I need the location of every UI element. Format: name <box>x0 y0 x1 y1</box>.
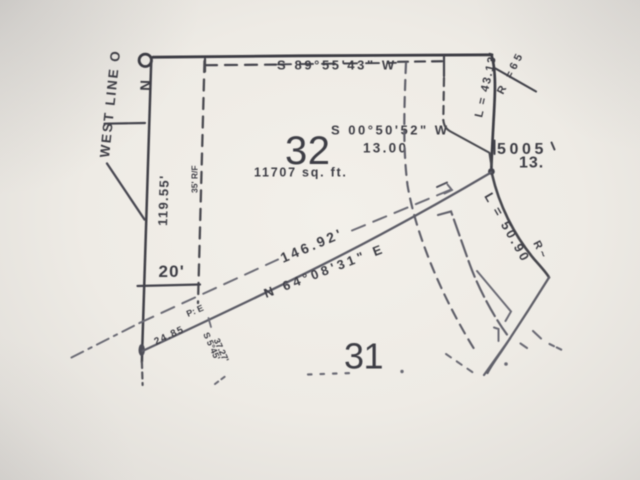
svg-text:119.55': 119.55' <box>155 174 172 226</box>
svg-text:24.85: 24.85 <box>153 324 187 348</box>
svg-text:R =65: R =65 <box>495 49 527 96</box>
svg-text:L = 50.90: L = 50.90 <box>481 190 533 265</box>
svg-text:35' R/F: 35' R/F <box>190 165 200 193</box>
svg-text:11707 sq. ft.: 11707 sq. ft. <box>254 166 348 180</box>
svg-text:13.00: 13.00 <box>363 141 408 156</box>
svg-text:13.: 13. <box>519 155 544 172</box>
svg-text:20': 20' <box>159 262 186 281</box>
svg-text:WEST LINE O: WEST LINE O <box>97 49 123 159</box>
svg-text:N: N <box>138 80 155 91</box>
svg-text:S 89°55'43" W: S 89°55'43" W <box>277 58 397 73</box>
svg-text:P: E: P: E <box>185 303 205 319</box>
svg-text:31: 31 <box>344 336 383 377</box>
svg-text:S 00°50'52" W: S 00°50'52" W <box>331 123 450 138</box>
